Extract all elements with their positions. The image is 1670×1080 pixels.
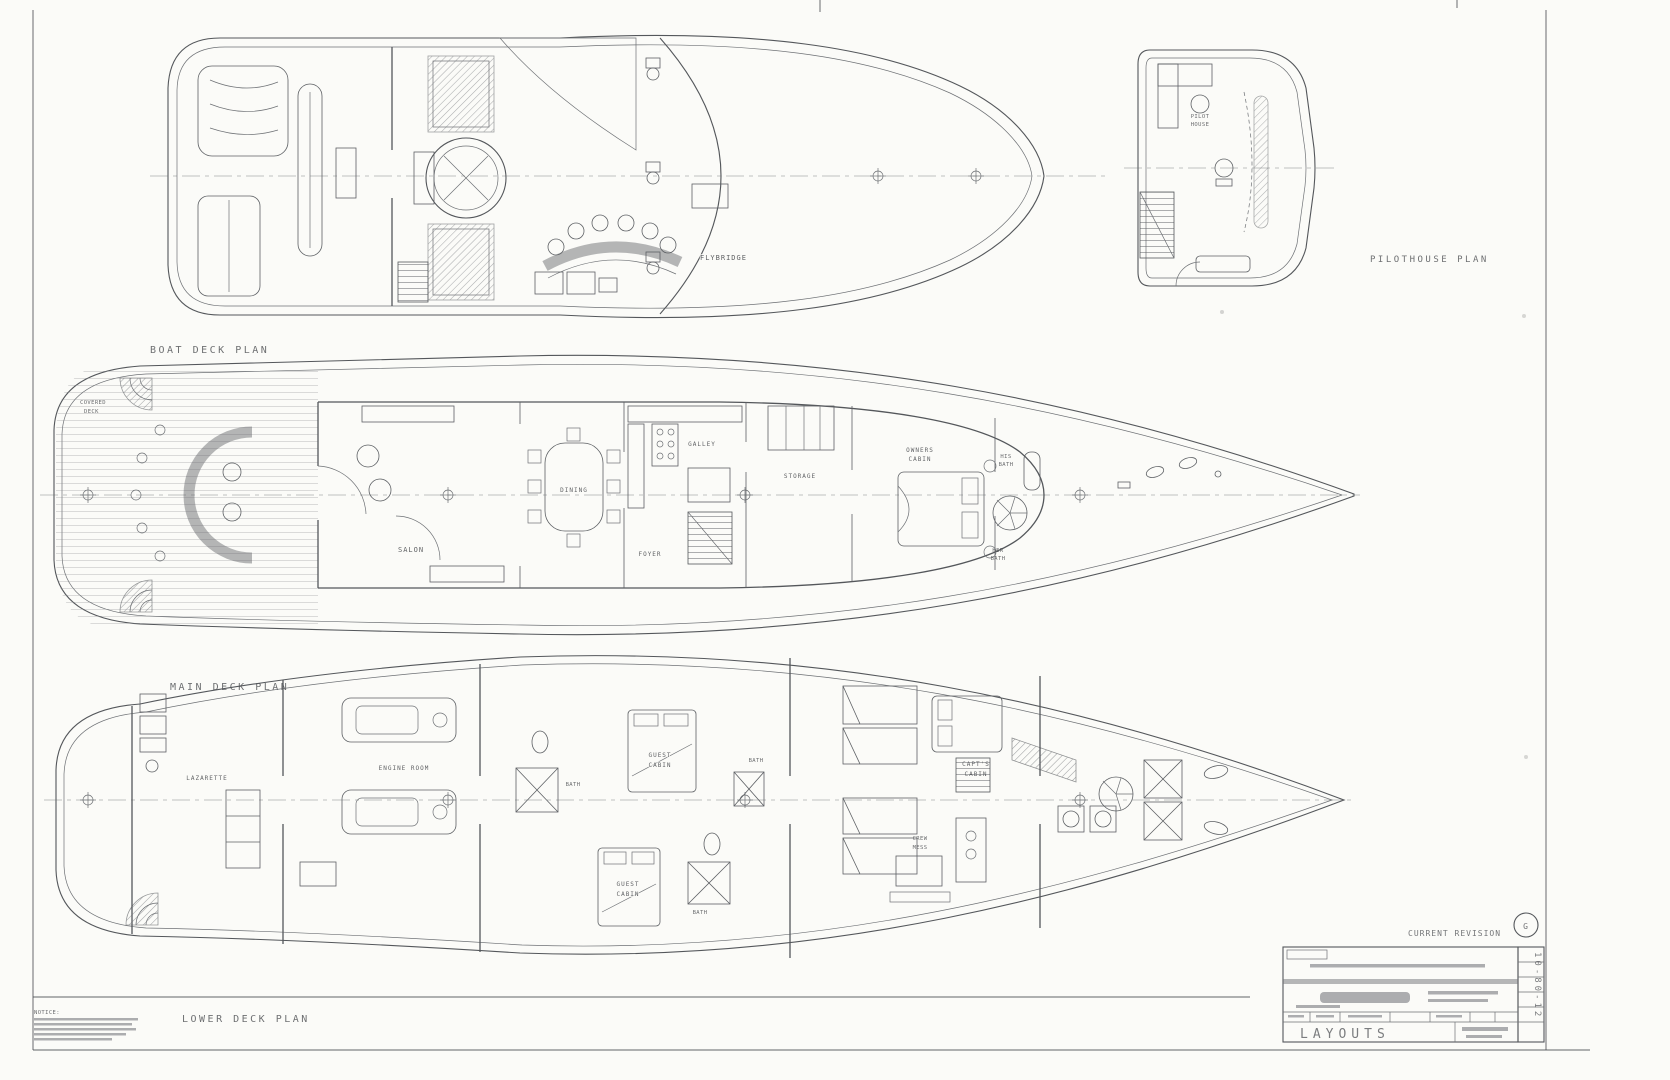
- engine-starboard: [342, 790, 456, 834]
- builder-address-line: [1296, 1005, 1340, 1008]
- revision-note-line: [1310, 964, 1485, 968]
- guest-bed-fwd: [628, 710, 696, 792]
- notice-text-line: [34, 1028, 136, 1031]
- notice-text-line: [34, 1033, 126, 1036]
- boat-deck-plan-title: BOAT DECK PLAN: [150, 345, 269, 356]
- salon-door-swing: [318, 466, 366, 514]
- notice-label: NOTICE:: [34, 1010, 60, 1016]
- sheet-number-smudge: [1462, 1027, 1508, 1031]
- bow-seat: [1203, 819, 1229, 836]
- builder-logo: [1320, 992, 1410, 1003]
- notice-text-line: [34, 1038, 112, 1041]
- spa-tub: [414, 138, 506, 218]
- salon-sofa: [362, 406, 454, 422]
- vent-hatch: [428, 56, 494, 132]
- current-revision-label: CURRENT REVISION: [1408, 929, 1501, 938]
- lower-deck-plan: LAZARETTE ENGINE ROOM GUEST CABIN: [44, 656, 1352, 1025]
- washer-dryer: [1058, 806, 1116, 832]
- label-bath: BATH: [749, 758, 764, 764]
- bar-stool: [642, 223, 658, 239]
- shower-stall: [516, 768, 558, 812]
- pilothouse-plan-title: PILOTHOUSE PLAN: [1370, 255, 1489, 265]
- bar-stool: [548, 239, 564, 255]
- label-galley: GALLEY: [688, 441, 716, 448]
- svg-text:CABIN: CABIN: [616, 891, 639, 898]
- storage-shelves: [768, 406, 834, 450]
- notice-text-line: [34, 1018, 138, 1021]
- flybridge-bar: [545, 215, 680, 278]
- foredeck-hatch: [692, 184, 728, 208]
- sun-lounge: [198, 66, 288, 156]
- main-deck-plan: COVERED DECK SALON D: [40, 355, 1360, 693]
- helm-seat: [646, 58, 660, 274]
- toilet: [704, 833, 720, 855]
- svg-text:CABIN: CABIN: [648, 762, 671, 769]
- deck-locker: [535, 272, 563, 294]
- boat-deck-plan: FLYBRIDGE BOAT DECK PLAN: [150, 35, 1108, 356]
- owners-bed: [898, 460, 996, 558]
- toilet: [532, 731, 548, 753]
- ga-drawing: FLYBRIDGE BOAT DECK PLAN PILOT HOUSE PIL…: [0, 0, 1670, 1080]
- captains-bed: [932, 696, 1002, 752]
- label-dining: DINING: [560, 487, 588, 494]
- label-crew-mess: CREW: [913, 836, 928, 842]
- title-block-band: [1283, 979, 1518, 984]
- salon-furniture: [357, 406, 504, 582]
- crew-galley-counter: [956, 818, 986, 882]
- lazarette-stairs: [126, 893, 158, 925]
- crew-bunks: [843, 686, 917, 874]
- svg-text:BATH: BATH: [999, 462, 1014, 468]
- salon-chair: [357, 445, 379, 467]
- label-flybridge: FLYBRIDGE: [700, 254, 747, 262]
- pilothouse-settee: [1158, 64, 1212, 86]
- label-guest-cabin-aft: GUEST: [616, 881, 639, 888]
- deck-locker: [567, 272, 595, 294]
- label-her-bath: HER: [992, 548, 1003, 554]
- deck-locker: [599, 278, 617, 292]
- station-mark: [80, 792, 1088, 808]
- svg-text:DECK: DECK: [84, 409, 99, 415]
- boat-deck-stairs: [398, 262, 428, 302]
- pilothouse-plan: PILOT HOUSE PILOTHOUSE PLAN: [1124, 50, 1489, 286]
- sheet-number-smudge: [1466, 1035, 1502, 1038]
- notice-block: NOTICE:: [34, 1010, 138, 1041]
- label-bath: BATH: [566, 782, 581, 788]
- svg-text:HOUSE: HOUSE: [1191, 122, 1210, 128]
- label-salon: SALON: [398, 546, 424, 554]
- galley-island: [688, 468, 730, 502]
- label-guest-cabin-fwd: GUEST: [648, 752, 671, 759]
- label-engine-room: ENGINE ROOM: [379, 765, 430, 772]
- watertight-bulkheads: [132, 658, 1040, 958]
- bar-stool: [568, 223, 584, 239]
- label-foyer: FOYER: [638, 551, 661, 558]
- paper-speck: [1220, 310, 1224, 314]
- label-storage: STORAGE: [784, 473, 816, 480]
- drawing-number: 10-80-12: [1532, 952, 1542, 1019]
- svg-text:CABIN: CABIN: [908, 456, 931, 463]
- label-bath: BATH: [693, 910, 708, 916]
- label-lazarette: LAZARETTE: [186, 775, 228, 782]
- paper-speck: [1522, 314, 1526, 318]
- deck-box: [336, 148, 356, 198]
- label-pilot-house: PILOT: [1191, 114, 1210, 120]
- shower-stall: [734, 772, 764, 806]
- crew-stairs: [956, 738, 1076, 792]
- label-covered-deck: COVERED: [80, 400, 106, 406]
- salon-sofa: [430, 566, 504, 582]
- galley-counters: [628, 406, 742, 508]
- revision-letter: G: [1523, 922, 1529, 931]
- svg-text:BATH: BATH: [991, 556, 1006, 562]
- generator: [300, 862, 336, 886]
- bar-stool: [618, 215, 634, 231]
- label-owners-cabin: OWNERS: [906, 447, 934, 454]
- title-block: CURRENT REVISION G 10-80-12 L: [1283, 913, 1544, 1042]
- label-his-bath: HIS: [1000, 454, 1011, 460]
- salon-chair: [369, 479, 391, 501]
- spa-step: [414, 152, 434, 204]
- title-block-tab: [1287, 950, 1327, 959]
- helm-console: [1254, 96, 1268, 228]
- crew-mess: [890, 818, 986, 902]
- boat-deck-inner-line: [177, 45, 1032, 308]
- title-block-grid: [1310, 1012, 1495, 1022]
- boat-deck-hull-outline: [168, 35, 1044, 317]
- vent-hatch: [428, 224, 494, 300]
- engine-port: [342, 698, 456, 742]
- bow-seat: [1203, 763, 1229, 780]
- bar-stool: [660, 237, 676, 253]
- drawing-sheet: FLYBRIDGE BOAT DECK PLAN PILOT HOUSE PIL…: [0, 0, 1670, 1080]
- bar-stool: [592, 215, 608, 231]
- builder-address-line: [1428, 999, 1488, 1002]
- pilothouse-settee: [1158, 64, 1178, 128]
- foredeck-gear: [1118, 455, 1221, 488]
- pilothouse-bench: [1196, 256, 1250, 272]
- shower-stall: [688, 862, 730, 904]
- pilothouse-table: [1191, 95, 1209, 113]
- console-arc: [1244, 92, 1252, 232]
- notice-text-line: [34, 1023, 132, 1026]
- lower-deck-plan-title: LOWER DECK PLAN: [182, 1014, 310, 1025]
- arch-outline: [500, 38, 636, 150]
- svg-text:MESS: MESS: [913, 845, 928, 851]
- sheet-title: LAYOUTS: [1300, 1027, 1390, 1042]
- owners-shower: [993, 496, 1027, 530]
- paper-speck: [1524, 755, 1528, 759]
- builder-address-line: [1428, 991, 1498, 995]
- nightstand: [984, 460, 996, 472]
